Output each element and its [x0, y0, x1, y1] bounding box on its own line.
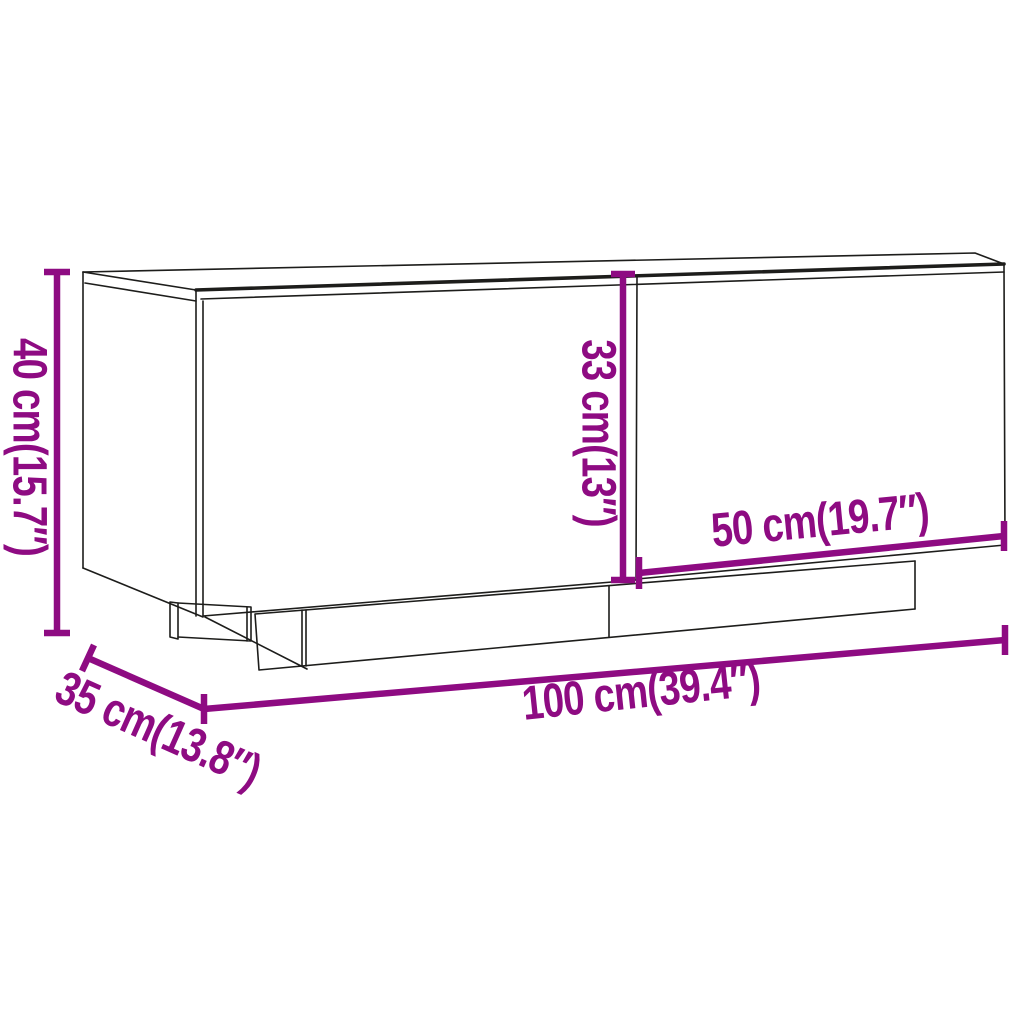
cabinet-left-side [83, 272, 203, 617]
cabinet-top-face [83, 253, 1004, 301]
plinth-base [170, 561, 915, 670]
dimension-label-height: 40 cm(15.7″) [2, 338, 57, 556]
dimension-label-door-height: 33 cm(13″) [571, 339, 626, 527]
dimension-diagram: 40 cm(15.7″) 33 cm(13″) 35 cm(13.8″) 100… [0, 0, 1024, 1024]
